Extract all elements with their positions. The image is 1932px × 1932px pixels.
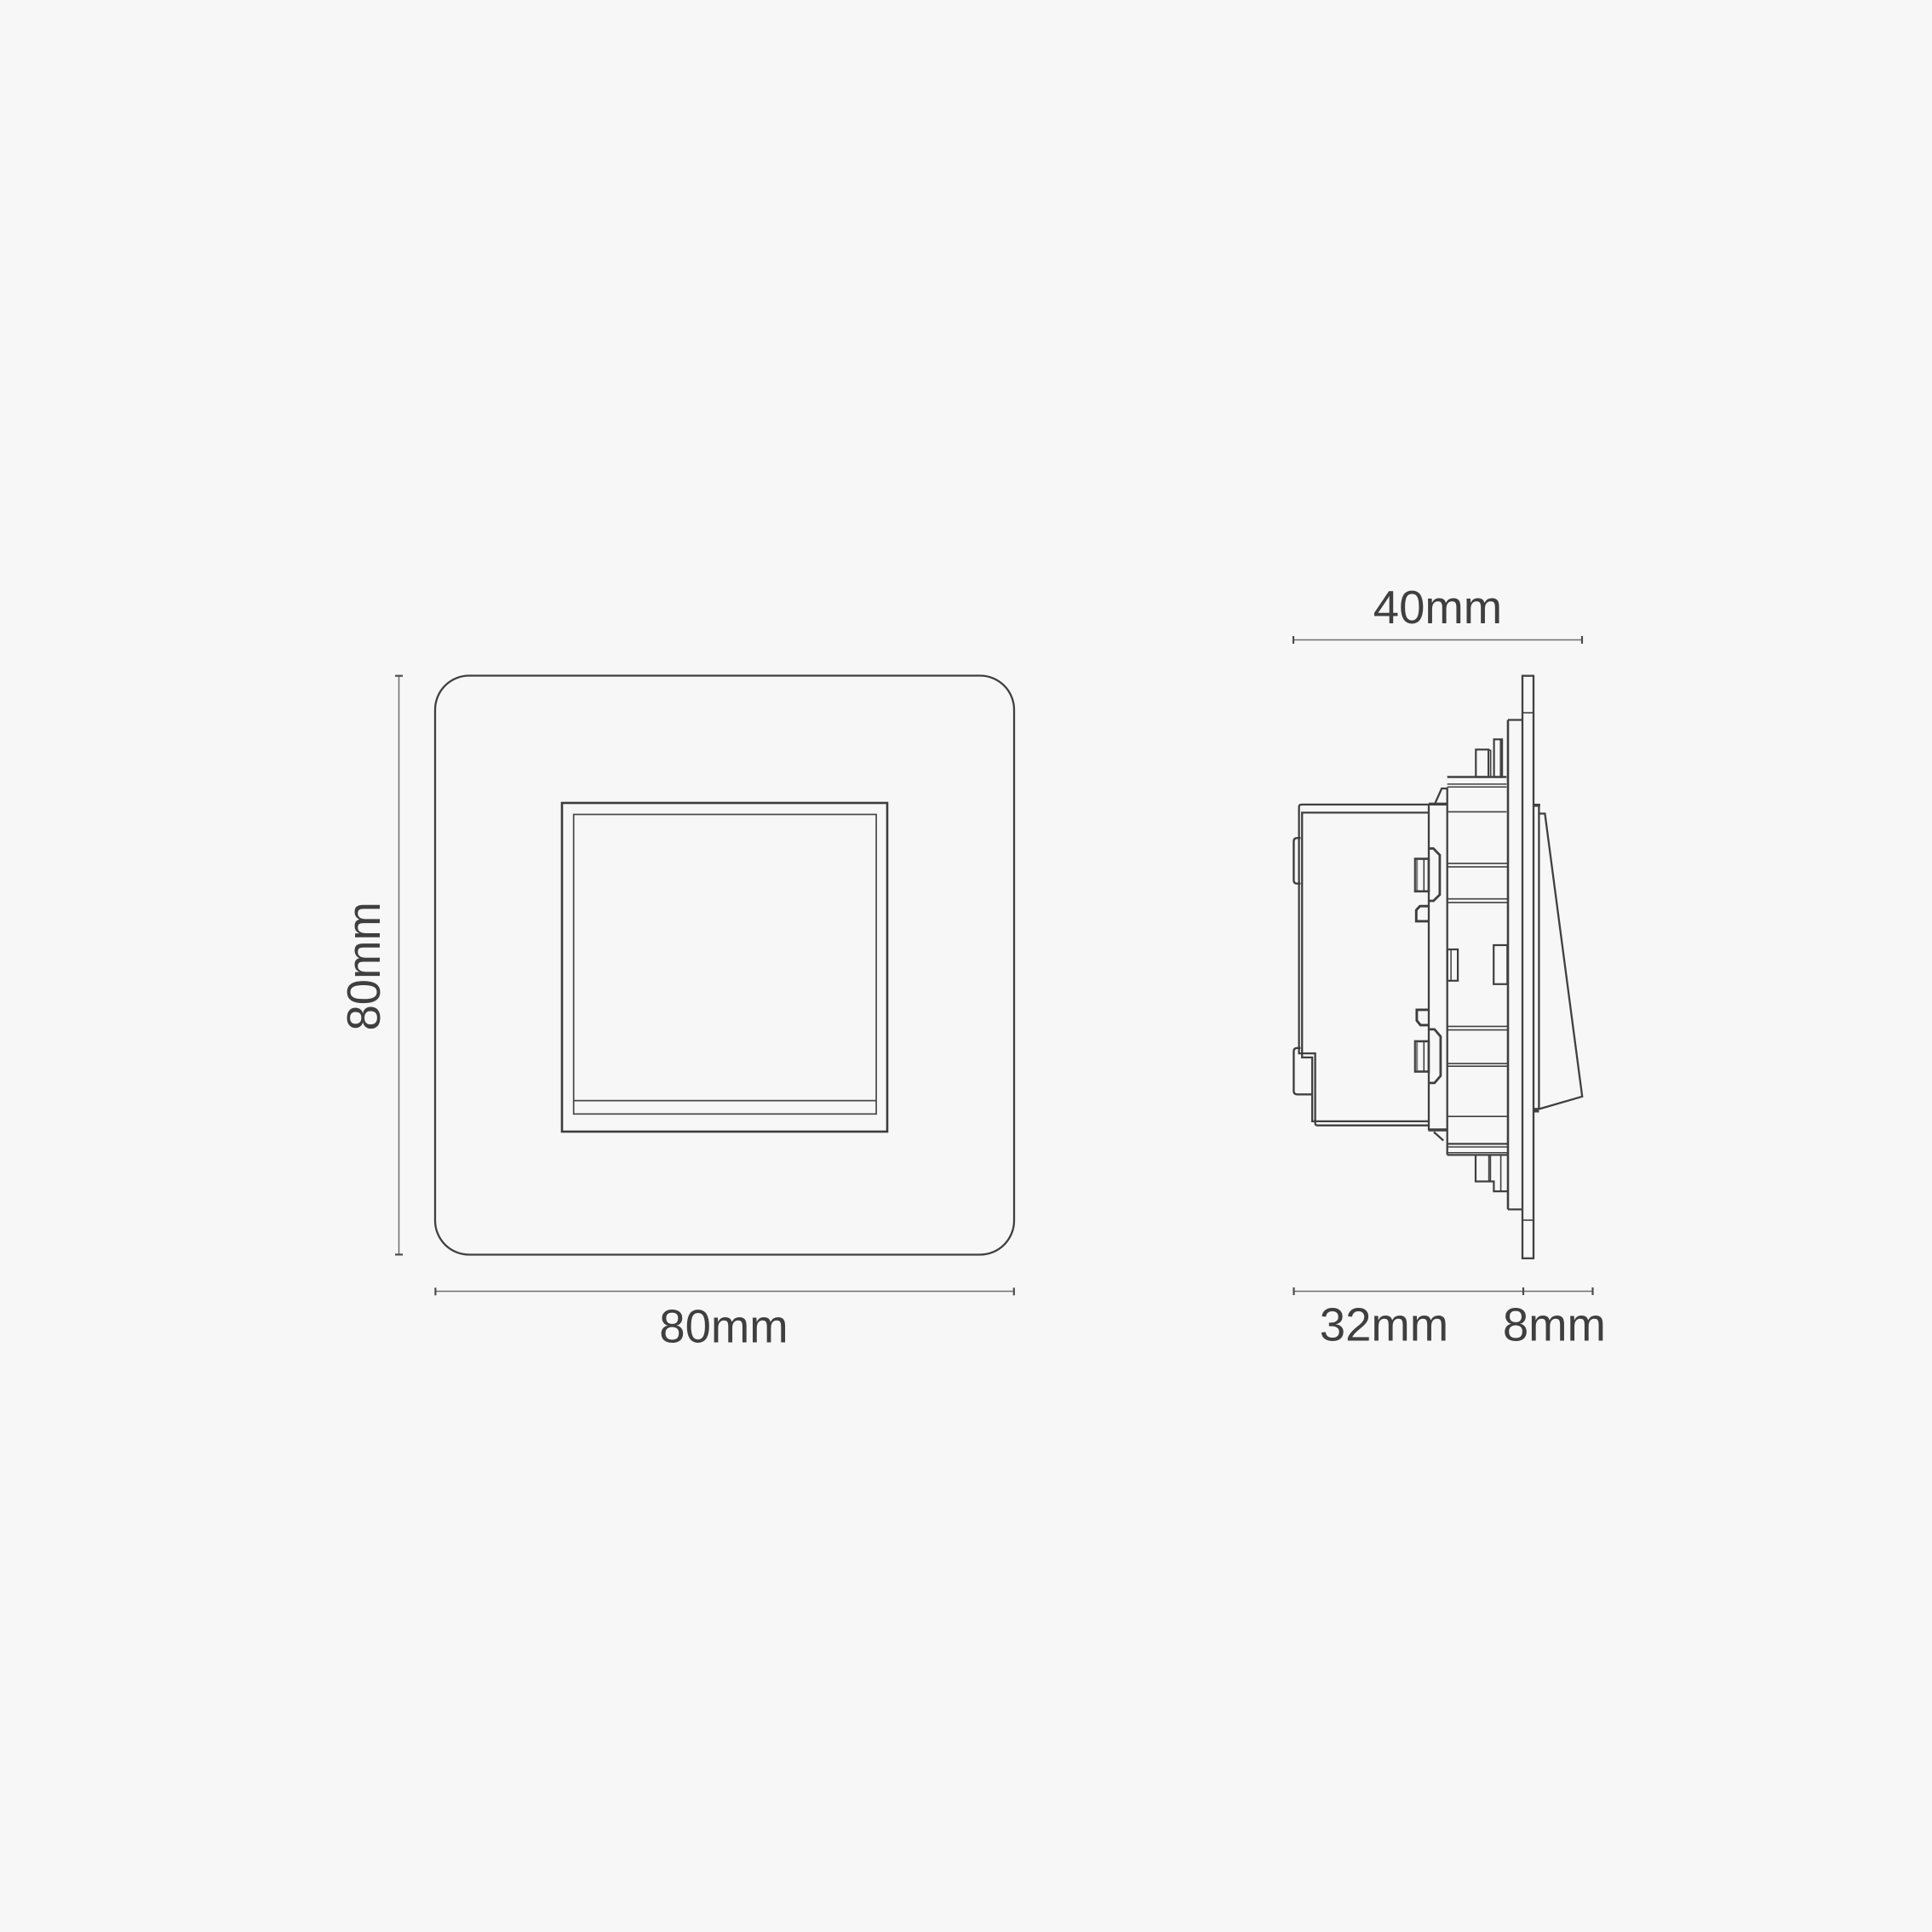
svg-text:80mm: 80mm: [659, 1300, 788, 1352]
svg-text:40mm: 40mm: [1373, 582, 1502, 633]
svg-text:8mm: 8mm: [1503, 1299, 1606, 1350]
svg-text:32mm: 32mm: [1320, 1299, 1448, 1350]
svg-text:80mm: 80mm: [338, 902, 390, 1030]
